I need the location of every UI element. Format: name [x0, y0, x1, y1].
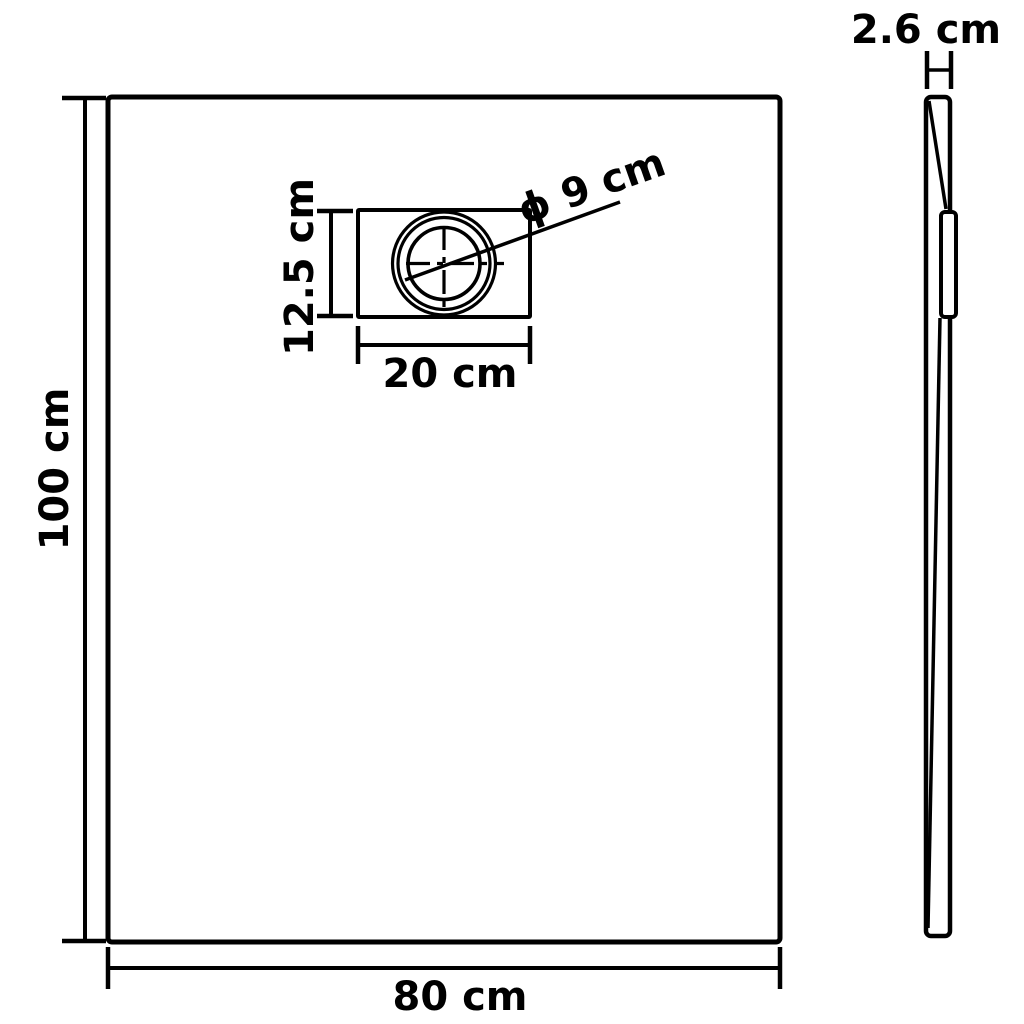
side-drain-bump	[941, 212, 956, 317]
drain-height-label: 12.5 cm	[277, 178, 323, 356]
technical-drawing-page: ϕ 9 cm 12.5 cm 20 cm 100 cm 80 cm	[0, 0, 1024, 1024]
tray-side-view	[926, 97, 956, 936]
tray-height-label: 100 cm	[32, 388, 78, 551]
shower-tray-dimension-drawing: ϕ 9 cm 12.5 cm 20 cm 100 cm 80 cm	[0, 0, 1024, 1024]
drain-width-label: 20 cm	[383, 351, 518, 397]
tray-thickness-dimension: 2.6 cm	[851, 7, 1001, 89]
tray-thickness-label: 2.6 cm	[851, 7, 1001, 53]
tray-height-dimension: 100 cm	[32, 98, 106, 941]
tray-width-dimension: 80 cm	[108, 947, 780, 1020]
tray-width-label: 80 cm	[393, 974, 528, 1020]
